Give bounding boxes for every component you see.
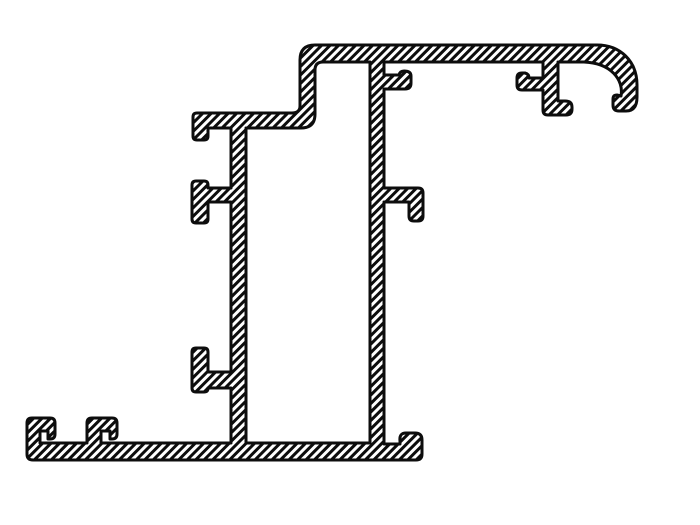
drawing-canvas — [0, 0, 700, 525]
extrusion-profile-drawing — [0, 0, 700, 525]
